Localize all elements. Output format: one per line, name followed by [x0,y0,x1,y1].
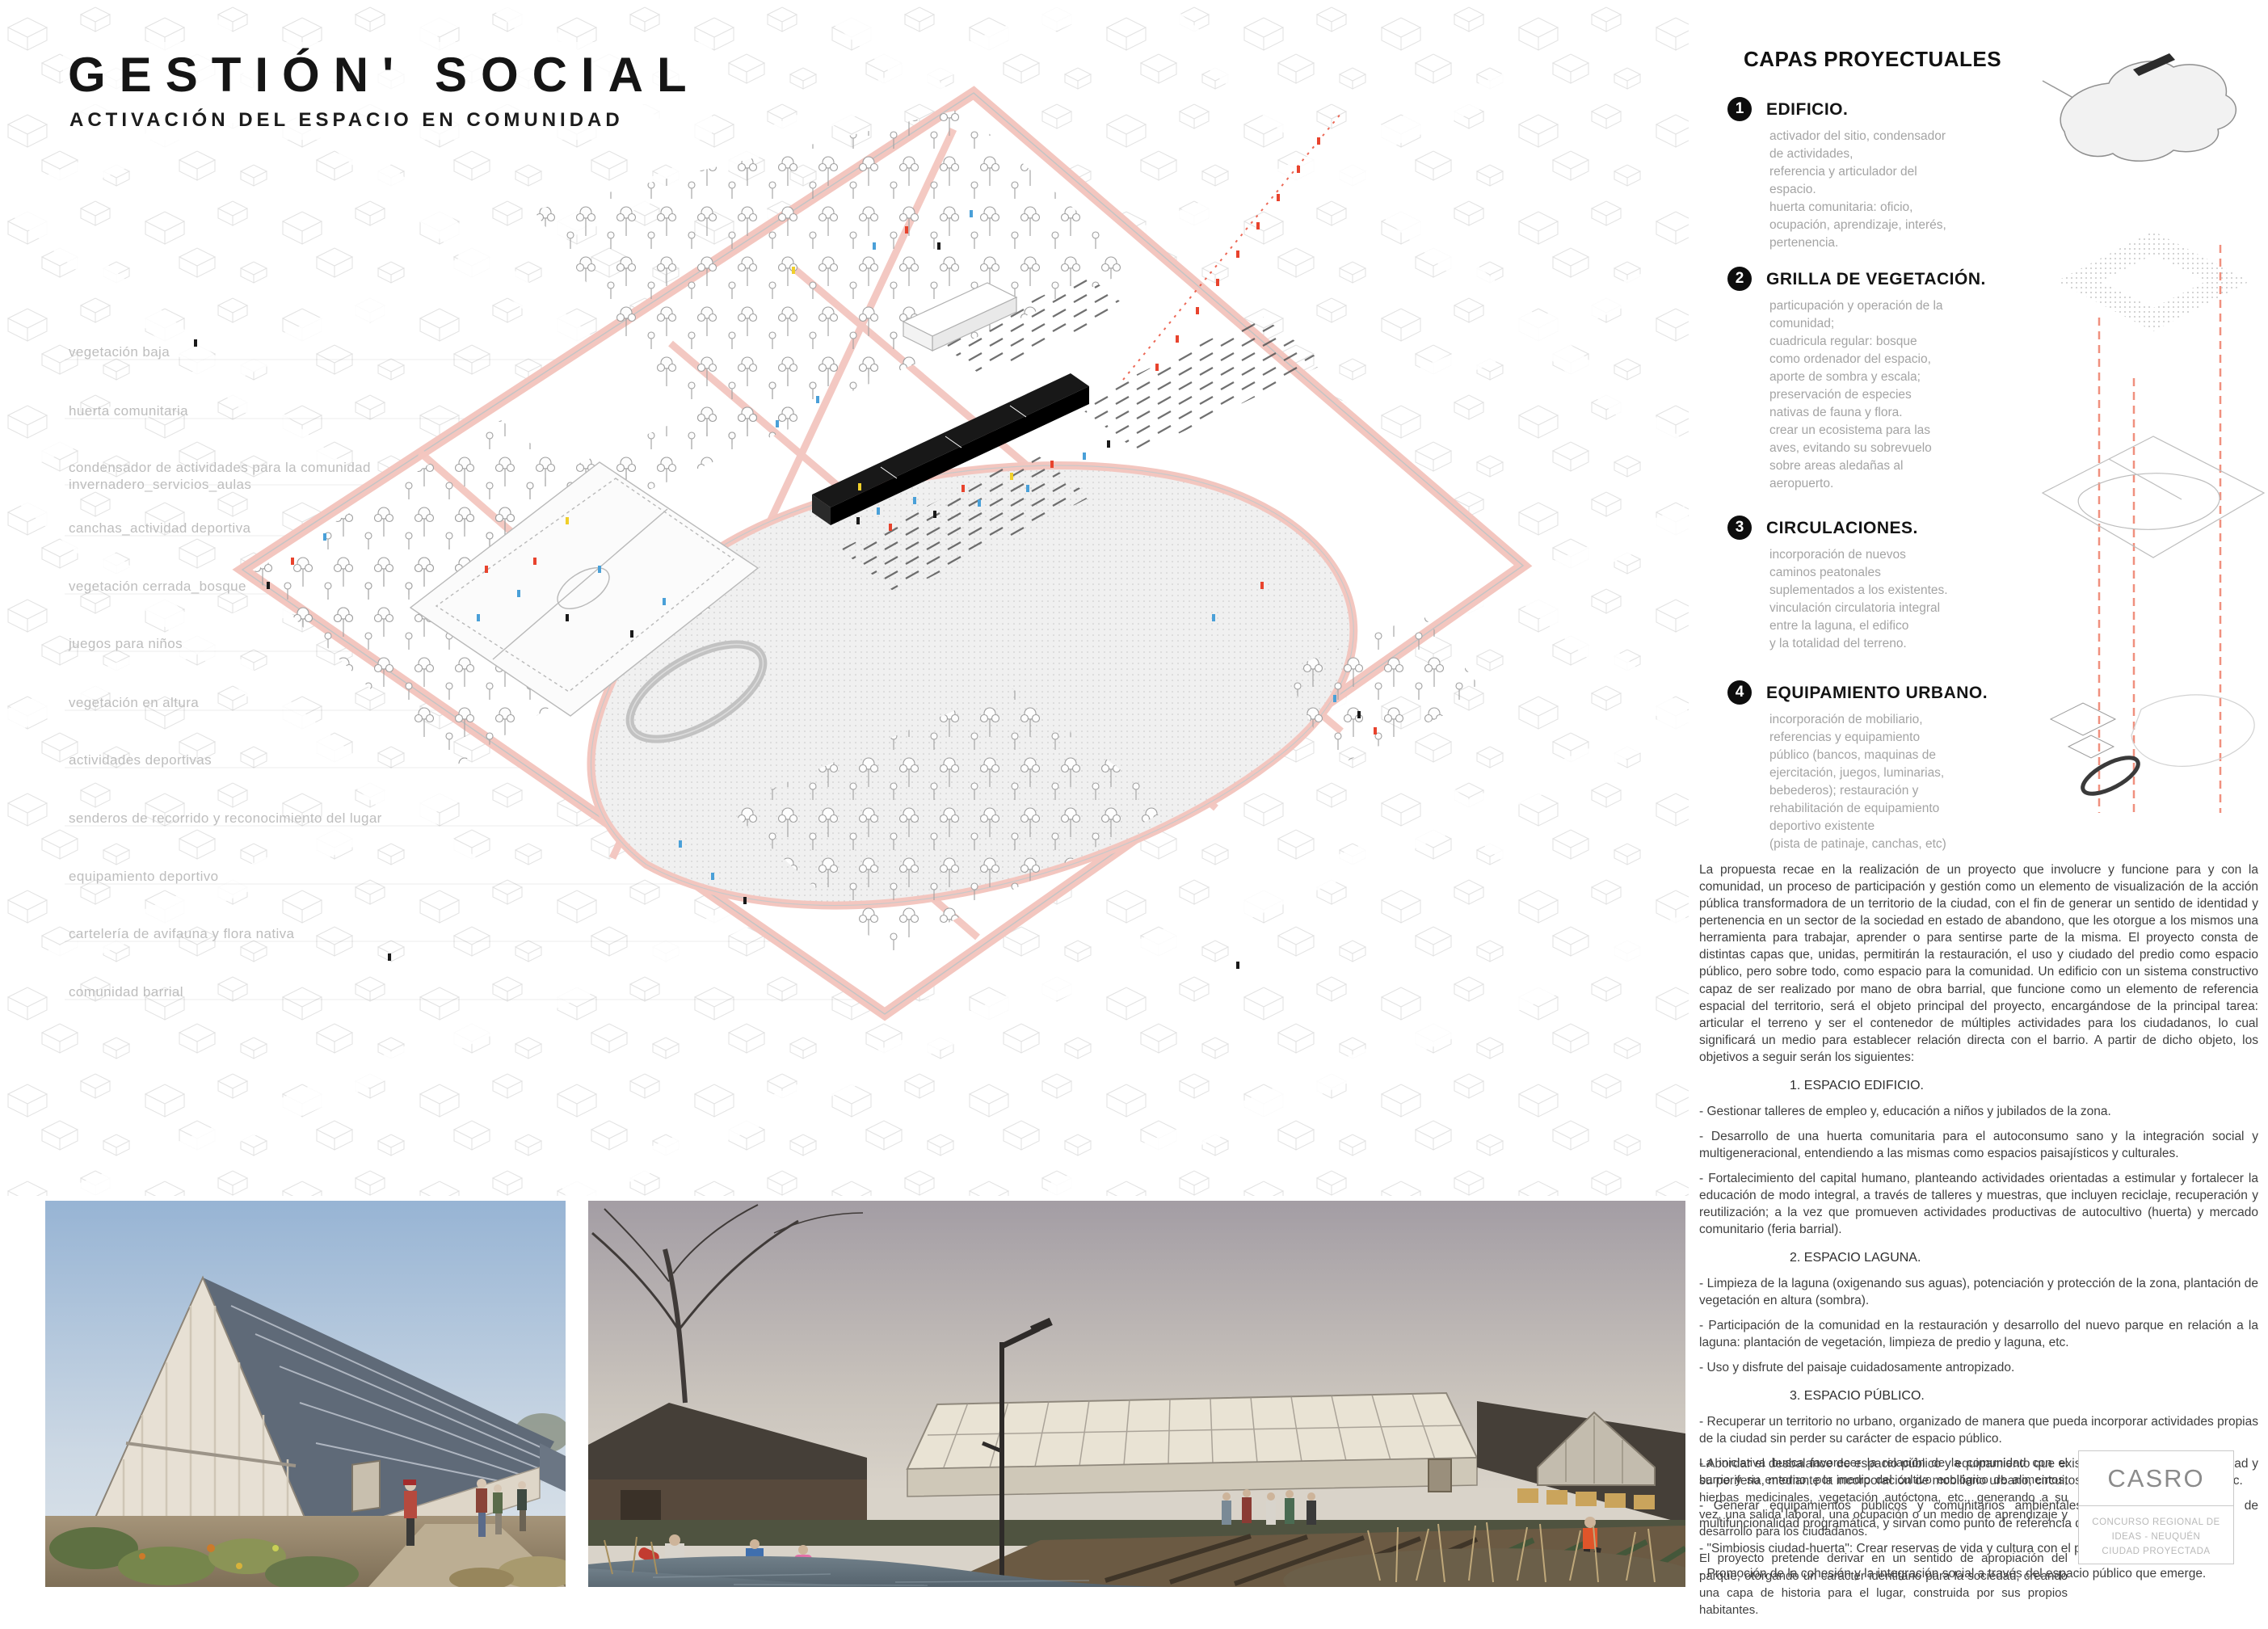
competition-logo-box: CASRO CONCURSO REGIONAL DE IDEAS - NEUQU… [2078,1450,2234,1564]
closing-paragraph: El proyecto pretende derivar en un senti… [1699,1550,2068,1618]
plan-label: comunidad barrial [69,983,440,1000]
photo-greenhouse-path [45,1201,566,1587]
capas-heading: CAPAS PROYECTUALES [1744,47,2001,72]
memoria-bullet: - Desarrollo de una huerta comunitaria p… [1699,1128,2258,1162]
plan-label: huerta comunitaria [69,402,440,419]
competition-name: CONCURSO REGIONAL DE IDEAS - NEUQUÉN CIU… [2079,1506,2233,1568]
plan-label: cartelería de avifauna y flora nativa [69,925,440,942]
memoria-section-heading: 3. ESPACIO PÚBLICO. [1790,1387,2258,1405]
plan-label: condensador de actividades para la comun… [69,459,440,494]
glowing-greenhouse [907,1393,1477,1496]
exploded-layers-diagram [2036,39,2268,823]
plan-label: vegetación baja [69,343,440,360]
plan-label: juegos para niños [69,635,440,652]
memoria-bullet: - Uso y disfrute del paisaje cuidadosame… [1699,1359,2258,1376]
memoria-bullet: - Fortalecimiento del capital humano, pl… [1699,1170,2258,1238]
photo-greenhouse-lagoon [588,1201,1685,1587]
capa-description: particupación y operación de la comunida… [1769,297,1988,493]
capa-number-badge: 1 [1727,97,1752,121]
memoria-bullet: - Limpieza de la laguna (oxigenando sus … [1699,1275,2258,1309]
layer-equipamiento [2051,695,2254,801]
memoria-bullet: - Recuperar un territorio no urbano, org… [1699,1413,2258,1447]
site-axonometric-drawing [0,0,1689,1196]
capa-title: CIRCULACIONES. [1766,519,1918,538]
plan-label: actividades deportivas [69,751,440,768]
title-block: GESTIÓN' SOCIAL ACTIVACIÓN DEL ESPACIO E… [63,42,712,140]
layer-circulaciones [2043,436,2264,558]
capa-number-badge: 3 [1727,516,1752,540]
capa-title: GRILLA DE VEGETACIÓN. [1766,270,1986,289]
capa-description: activador del sitio, condensador de acti… [1769,128,1988,252]
plan-label: vegetación en altura [69,694,440,711]
closing-paragraph: La iniciativa busca favorecer la relació… [1699,1454,2068,1540]
capa-title: EQUIPAMIENTO URBANO. [1766,684,1988,703]
casro-logo: CASRO [2079,1451,2233,1506]
capa-description: incorporación de mobiliario, referencias… [1769,711,1988,853]
plan-label: equipamiento deportivo [69,868,440,885]
memoria-bullet: - Gestionar talleres de empleo y, educac… [1699,1103,2258,1120]
memoria-intro: La propuesta recae en la realización de … [1699,861,2258,1066]
memoria-section-heading: 1. ESPACIO EDIFICIO. [1790,1077,2258,1095]
memoria-section-heading: 2. ESPACIO LAGUNA. [1790,1249,2258,1267]
layer-edificio [2043,53,2236,161]
plan-label: vegetación cerrada_bosque [69,578,440,595]
closing-text: La iniciativa busca favorecer la relació… [1699,1454,2068,1629]
capa-number-badge: 4 [1727,680,1752,705]
plan-label: canchas_actividad deportiva [69,520,440,537]
capa-description: incorporación de nuevos caminos peatonal… [1769,546,1988,653]
memoria-bullet: - Participación de la comunidad en la re… [1699,1317,2258,1351]
capa-number-badge: 2 [1727,267,1752,291]
competition-board: { "board": { "title": "GESTIÓN' SOCIAL",… [0,0,2268,1604]
page-title: GESTIÓN' SOCIAL [68,47,701,103]
plan-label: senderos de recorrido y reconocimiento d… [69,810,440,827]
capa-title: EDIFICIO. [1766,100,1848,120]
page-subtitle: ACTIVACIÓN DEL ESPACIO EN COMUNIDAD [69,109,701,132]
